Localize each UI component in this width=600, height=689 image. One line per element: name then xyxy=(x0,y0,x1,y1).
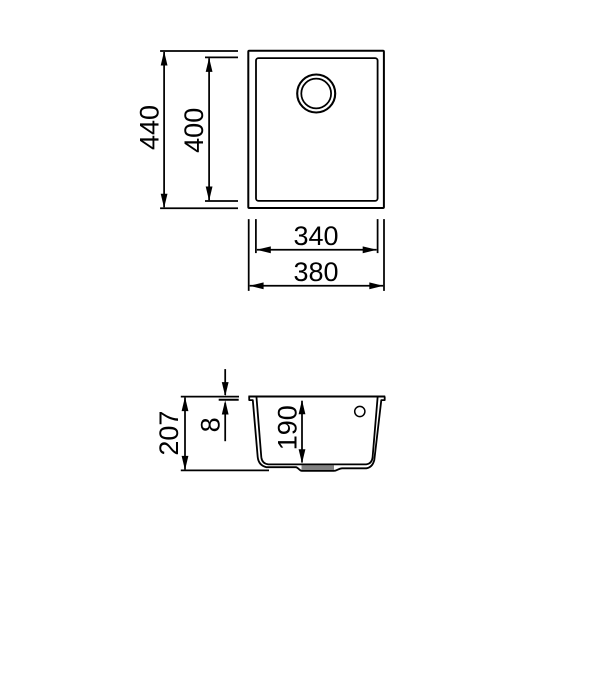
svg-text:207: 207 xyxy=(154,411,184,456)
svg-text:190: 190 xyxy=(272,405,302,450)
svg-text:440: 440 xyxy=(135,105,165,150)
svg-text:340: 340 xyxy=(293,221,338,251)
svg-text:400: 400 xyxy=(179,108,209,153)
svg-text:380: 380 xyxy=(293,257,338,287)
svg-text:8: 8 xyxy=(196,417,226,432)
